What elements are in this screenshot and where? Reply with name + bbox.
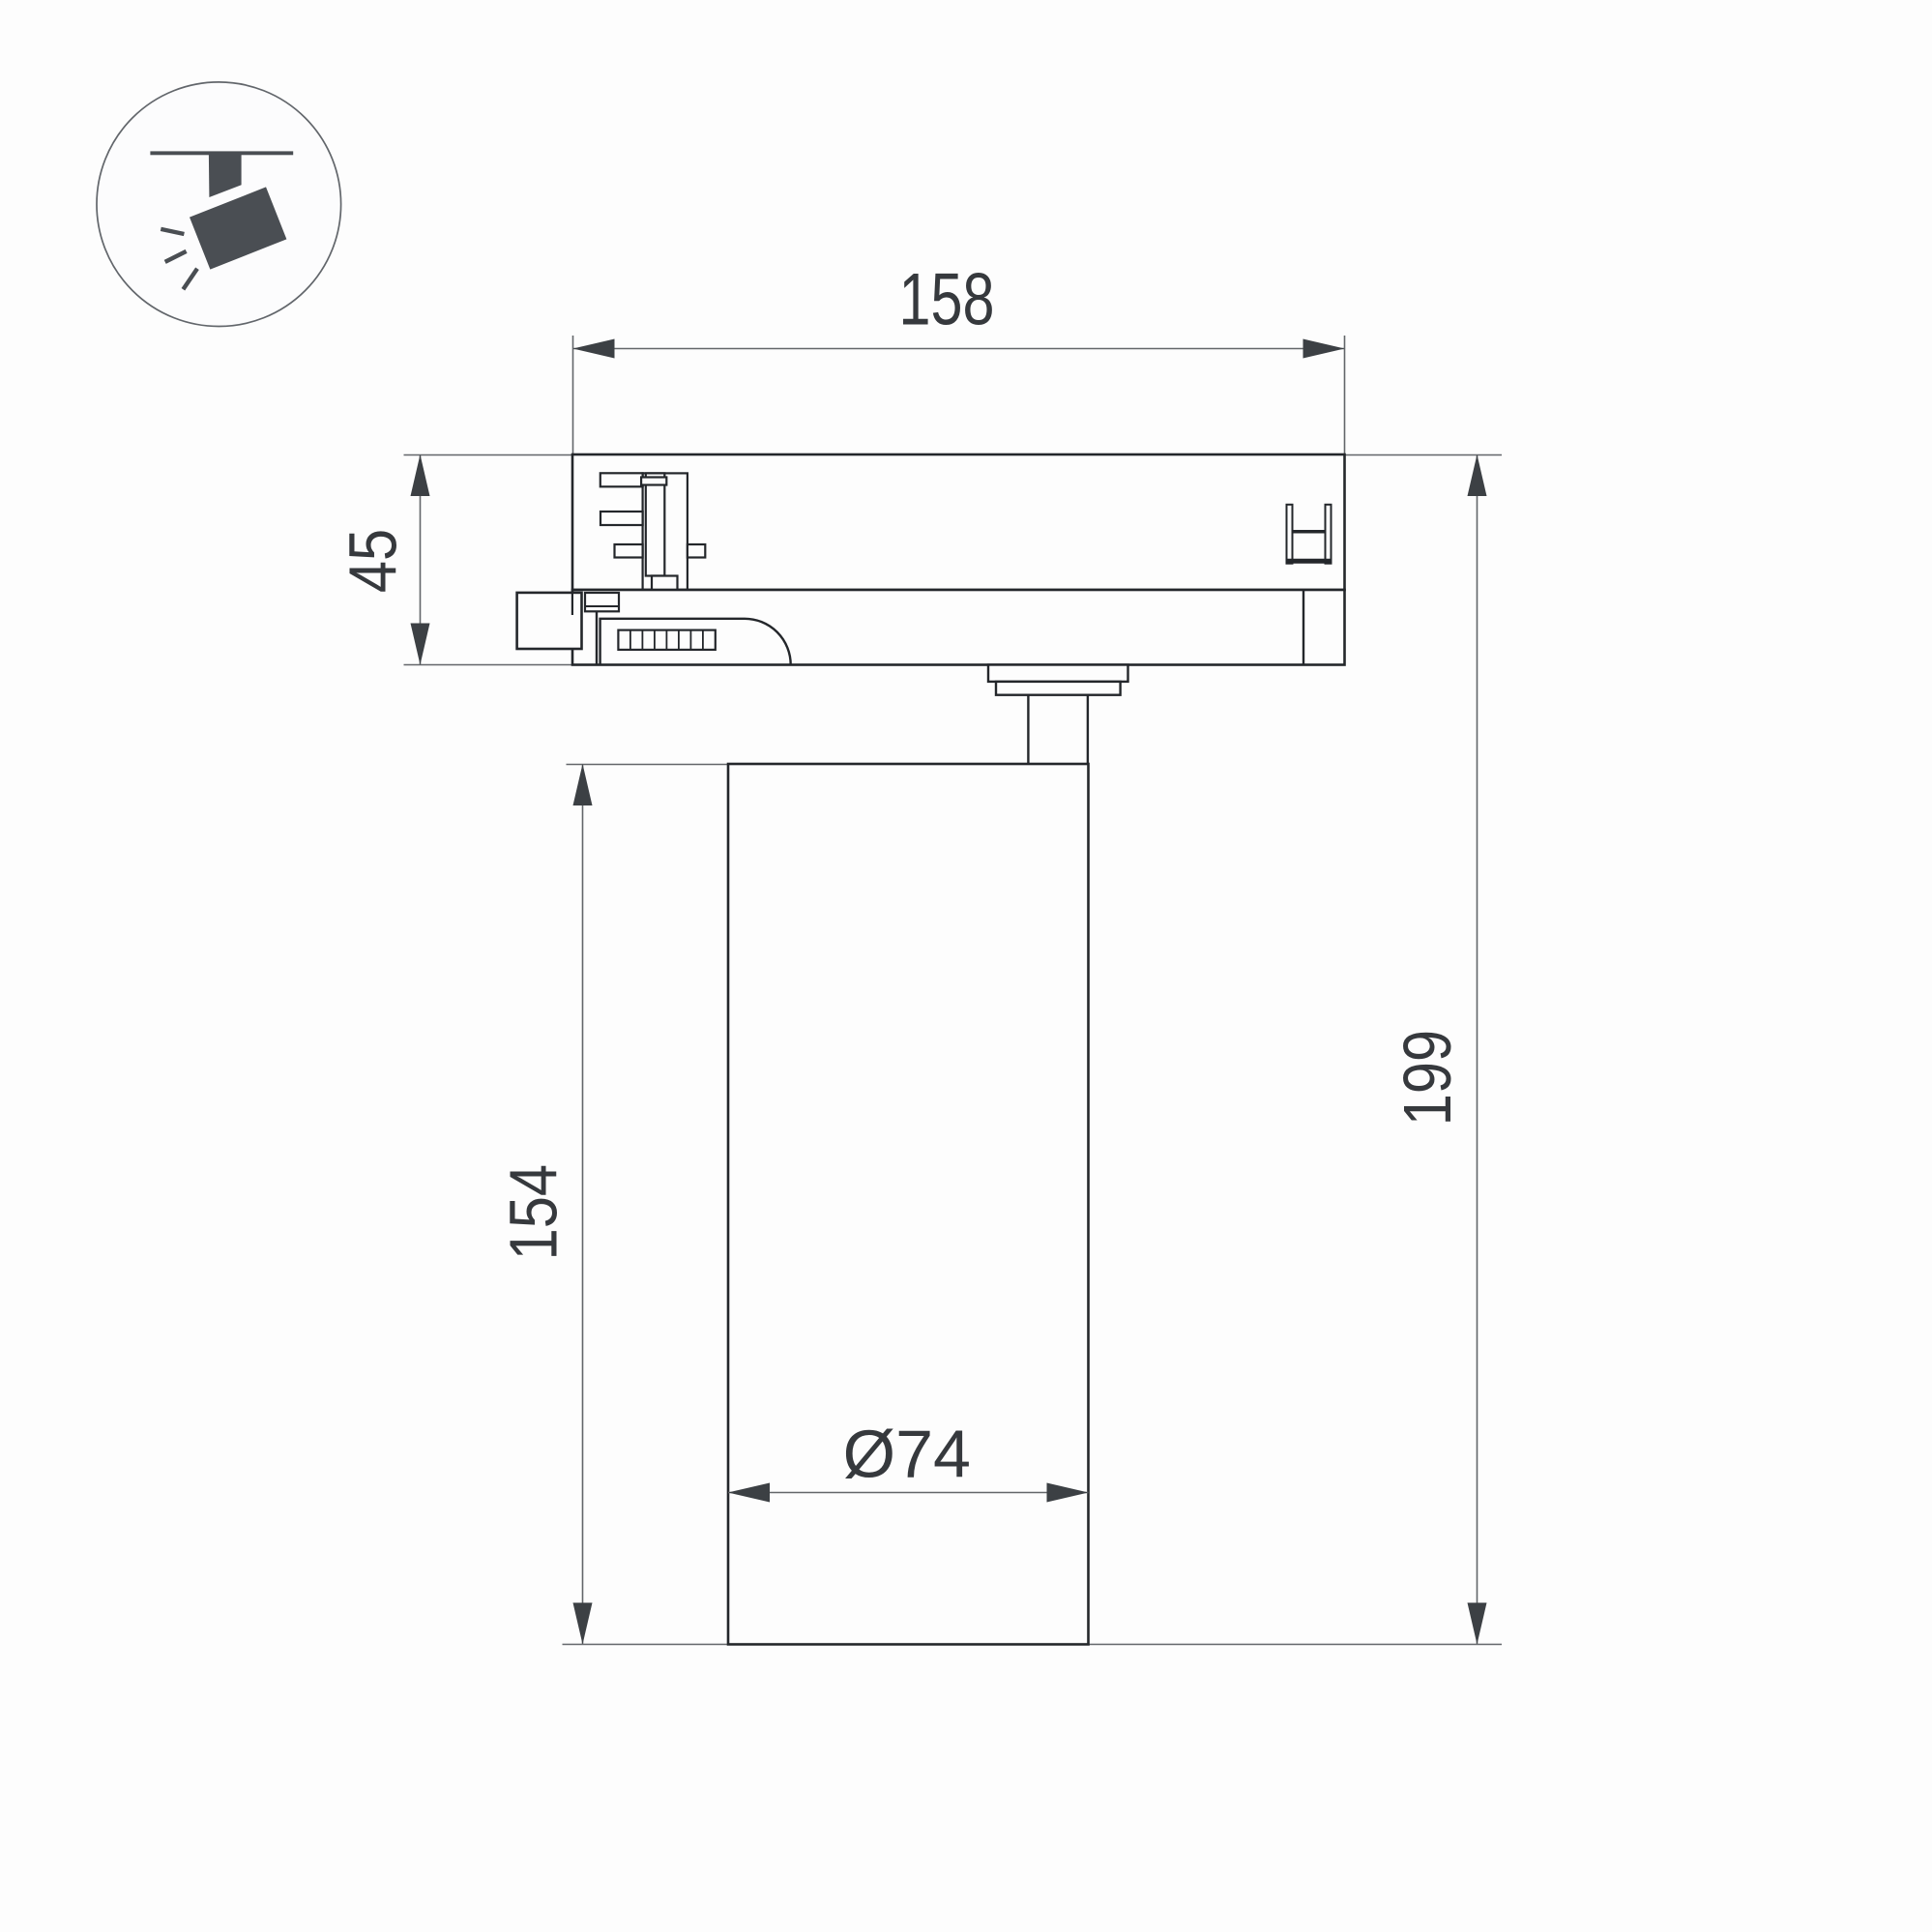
svg-text:199: 199	[1389, 1030, 1465, 1126]
svg-text:45: 45	[335, 529, 411, 593]
svg-text:Ø74: Ø74	[843, 1417, 971, 1492]
svg-text:154: 154	[495, 1164, 571, 1260]
svg-text:158: 158	[899, 258, 995, 340]
